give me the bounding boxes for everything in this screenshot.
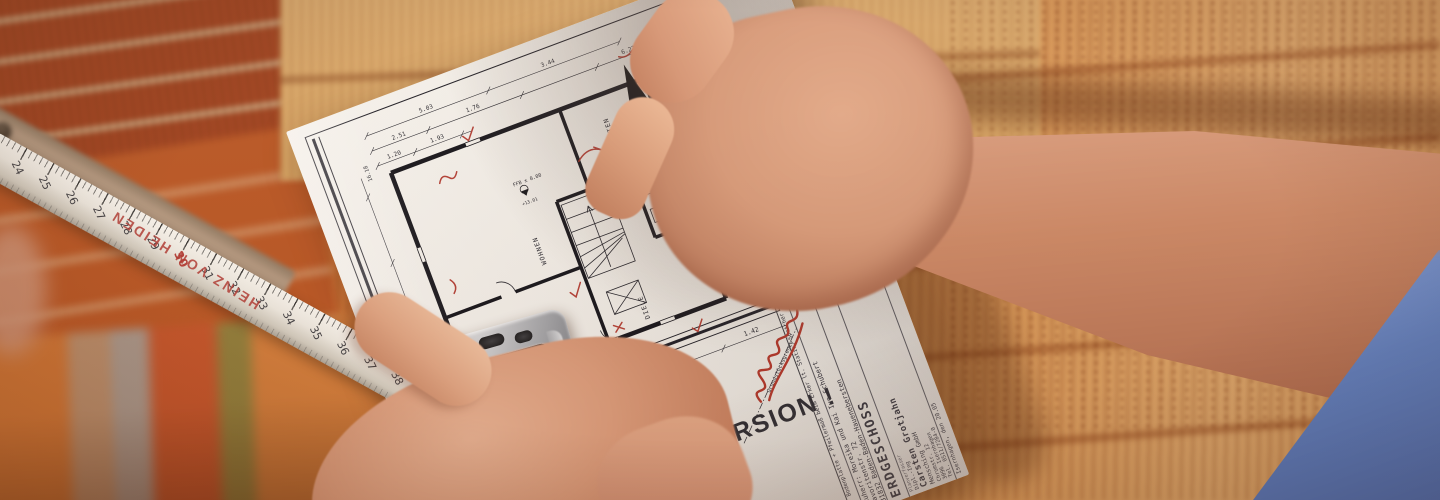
- level-note: FFB ± 0.00: [512, 172, 542, 188]
- svg-text:3.44: 3.44: [540, 58, 556, 70]
- svg-text:1.76: 1.76: [465, 103, 481, 115]
- svg-text:DIELE: DIELE: [636, 294, 652, 320]
- svg-text:1.20: 1.20: [386, 149, 402, 161]
- svg-text:5.03: 5.03: [418, 103, 434, 115]
- svg-text:WOHNEN: WOHNEN: [531, 236, 549, 266]
- phone-button: [513, 329, 533, 345]
- svg-text:1.42: 1.42: [743, 325, 761, 338]
- svg-text:16.18: 16.18: [363, 165, 374, 183]
- svg-text:2.51: 2.51: [391, 130, 407, 142]
- level-value: +13.01: [521, 196, 539, 207]
- svg-text:1.93: 1.93: [429, 133, 445, 145]
- construction-site-photo: 5.03 3.44 2.51 1.76 6.22 1.20 1.93 16.18…: [0, 0, 1440, 500]
